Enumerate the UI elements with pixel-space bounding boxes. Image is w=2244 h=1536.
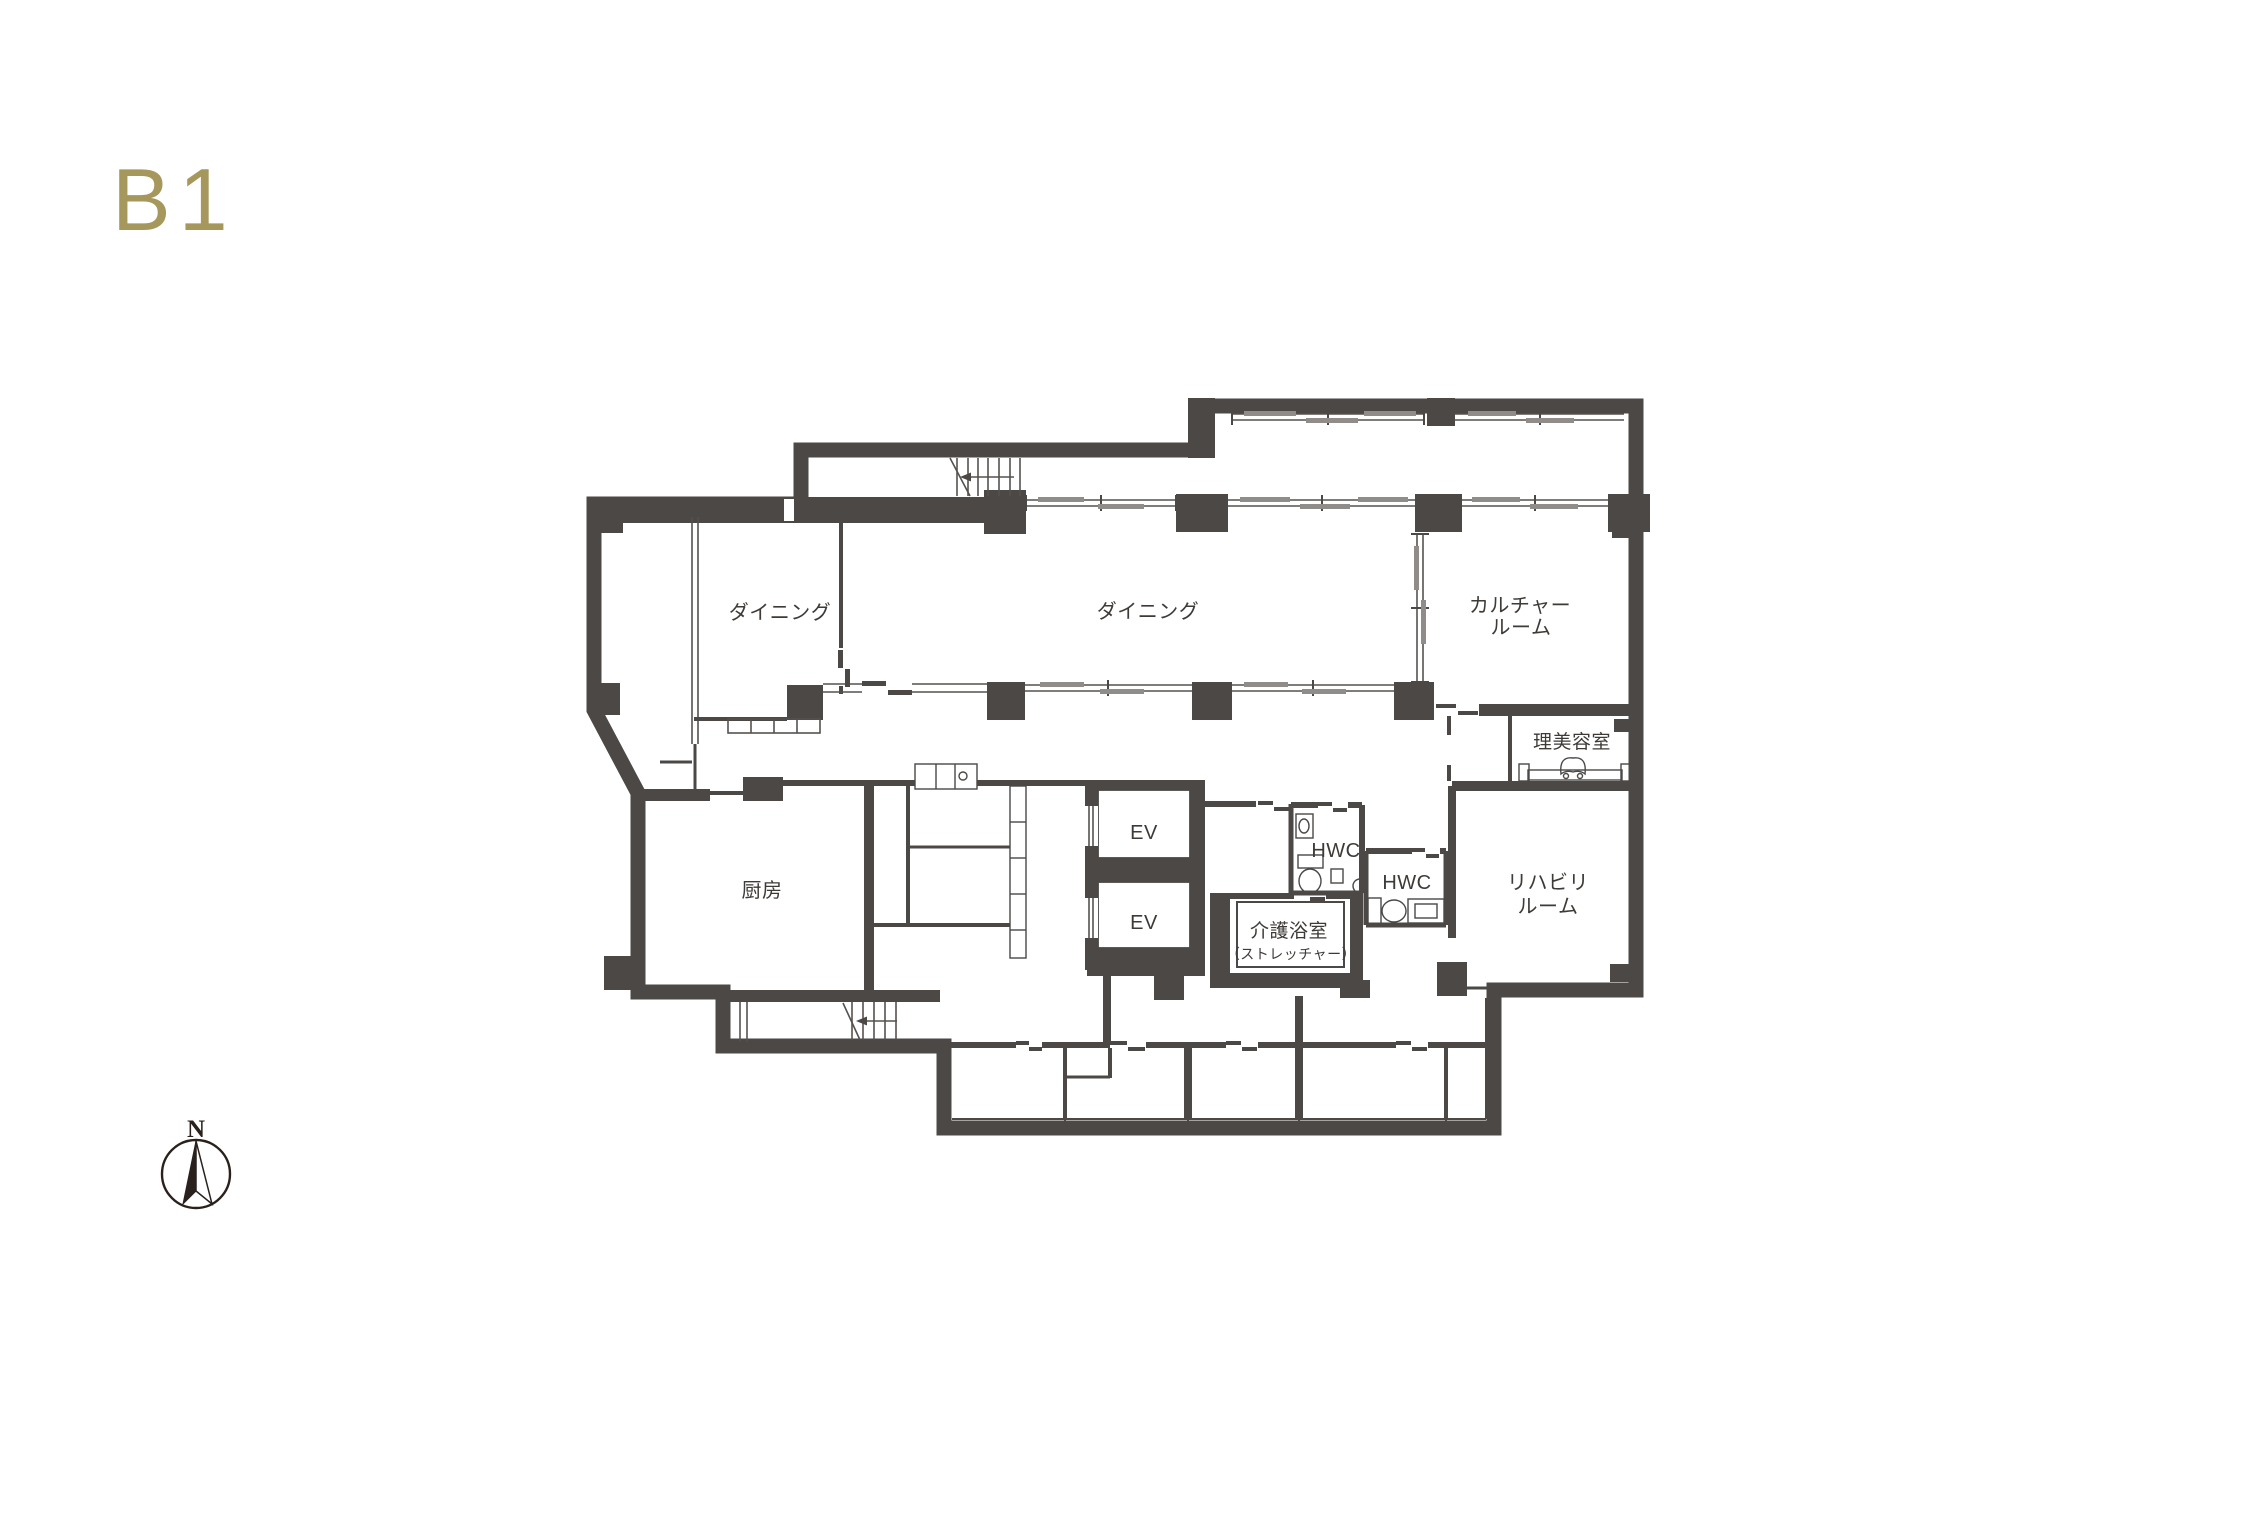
room-label-hwc-lower: HWC	[1382, 872, 1431, 894]
top-wall-door-gap	[784, 499, 794, 521]
room-label-ev-lower: EV	[1130, 912, 1158, 934]
top-wall	[588, 497, 984, 523]
salon-chair-icon	[1561, 758, 1586, 774]
room-label-dining-west: ダイニング	[729, 601, 832, 624]
elevator-shaft	[1083, 780, 1205, 970]
duct-shaft	[1010, 786, 1026, 958]
compass-needle-light	[196, 1141, 212, 1204]
room-label-salon: 理美容室	[1533, 731, 1611, 753]
room-label-hwc-upper: HWC	[1311, 840, 1360, 862]
toilet-tank-lower	[1368, 898, 1381, 924]
room-label-rehab-line1: リハビリ	[1507, 871, 1589, 894]
floor-plan: B1	[0, 0, 2244, 1536]
room-label-dining-main: ダイニング	[1097, 600, 1200, 623]
room-label-culture-line2: ルーム	[1491, 617, 1552, 639]
toilet-icon-lower	[1382, 900, 1406, 922]
stairs-lower	[740, 1002, 897, 1042]
room-label-care-bath-sub: （ストレッチャー）	[1226, 946, 1356, 962]
floor-plan-page: B1	[0, 0, 2244, 1536]
compass-needle-dark	[183, 1141, 196, 1204]
stairs-lower-direction-arrow	[856, 1017, 867, 1026]
floor-title: B1	[112, 150, 236, 249]
wc-counter	[1408, 899, 1444, 923]
room-label-rehab-line2: ルーム	[1518, 896, 1579, 918]
window-walls	[952, 409, 1624, 1125]
room-label-ev-upper: EV	[1130, 822, 1158, 844]
toilet-icon-upper	[1299, 869, 1321, 893]
room-label-culture-line1: カルチャー	[1469, 595, 1571, 617]
sink-counter	[915, 764, 977, 789]
room-label-kitchen: 厨房	[742, 879, 783, 902]
room-label-care-bath: 介護浴室	[1250, 920, 1328, 942]
compass: N	[162, 1116, 230, 1208]
